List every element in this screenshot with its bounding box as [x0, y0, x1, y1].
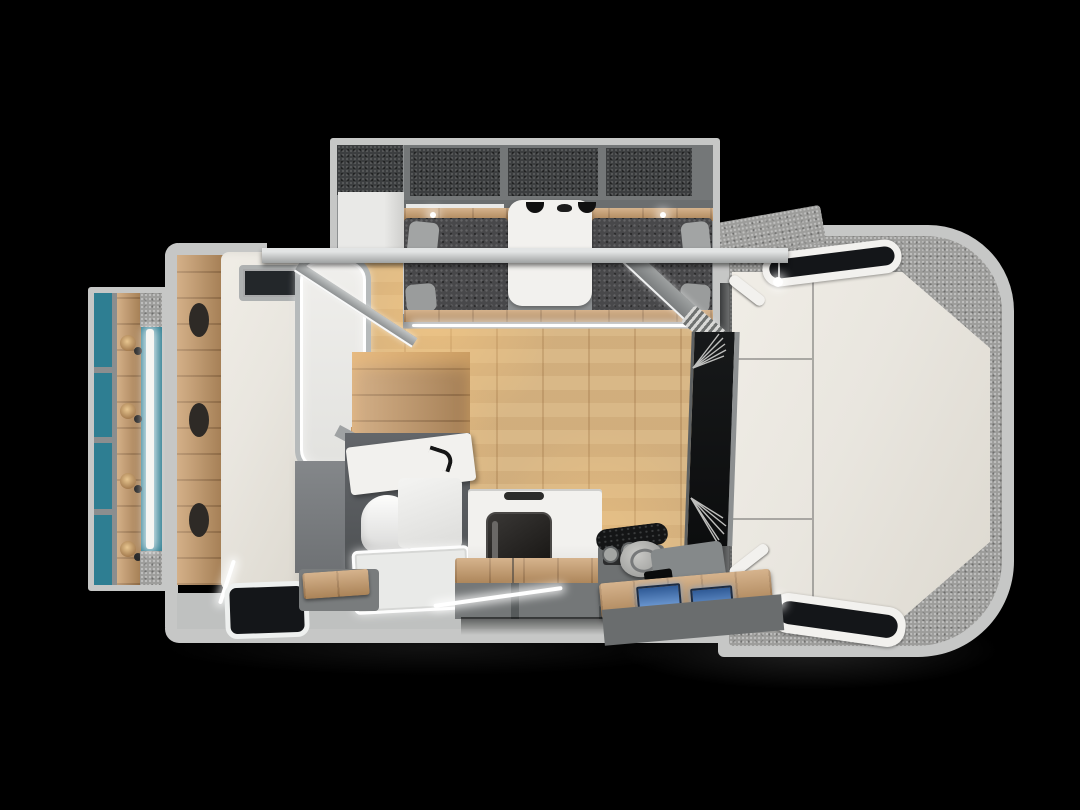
roof-vent — [239, 265, 301, 301]
wiper-bottom-icon — [687, 496, 727, 544]
bench-divider-1 — [512, 558, 514, 585]
shelf-2 — [94, 437, 114, 443]
dinette-carpet-bay — [337, 145, 403, 195]
slideout-carpet-top — [140, 293, 162, 327]
oven-handle — [492, 521, 498, 561]
shelf-3 — [94, 509, 114, 515]
kitchen-vent — [504, 492, 544, 500]
shelf-bay-2 — [508, 148, 598, 196]
shower-seat — [398, 478, 462, 548]
wiper-top-icon — [689, 332, 727, 370]
foot-window — [224, 581, 310, 640]
sconce-stem-3 — [134, 485, 142, 493]
mattress-seam-vertical — [812, 272, 814, 618]
headboard-led-strip — [146, 329, 154, 549]
step-stool-top — [302, 569, 370, 600]
sconce-stem-1 — [134, 347, 142, 355]
wardrobe-cutout-1 — [189, 303, 209, 337]
wardrobe-cutout-3 — [189, 503, 209, 537]
bedroom-slideout — [88, 287, 168, 591]
bench-leg-1 — [511, 583, 519, 619]
sconce-stem-2 — [134, 415, 142, 423]
bed-mattress — [221, 252, 303, 590]
shelf-bay-1 — [410, 148, 500, 196]
table-ornament — [557, 204, 572, 212]
wardrobe-cutout-2 — [189, 403, 209, 437]
floorplan-render — [0, 0, 1080, 810]
shelf-bay-3 — [606, 148, 692, 196]
cup-holder-1 — [602, 546, 619, 563]
cockpit-console — [575, 240, 805, 650]
slideout-carpet-bottom — [140, 551, 162, 585]
shelf-1 — [94, 367, 114, 373]
